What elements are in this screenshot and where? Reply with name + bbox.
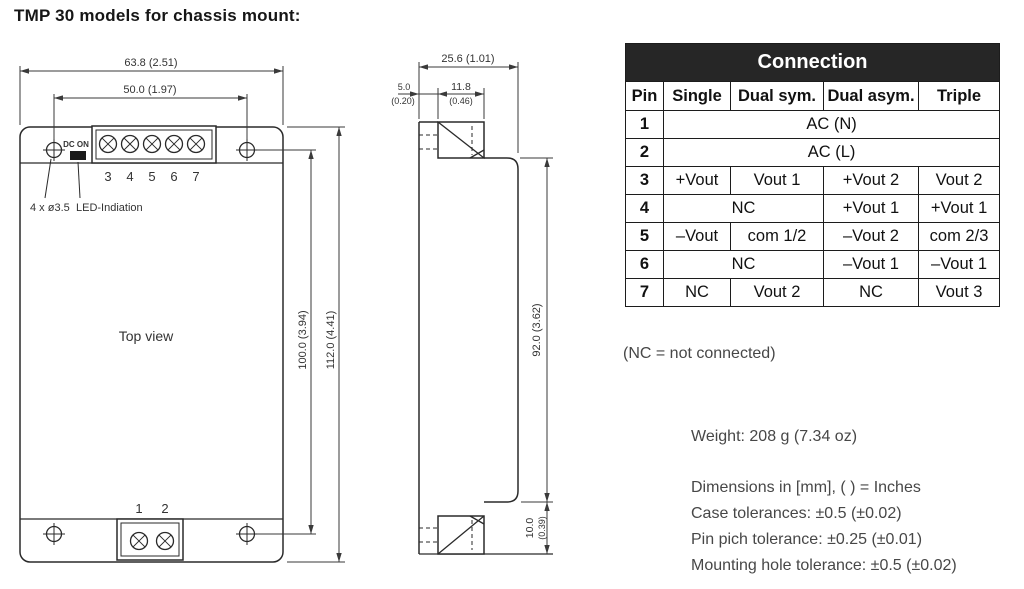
pin-cell: 7 — [626, 279, 664, 307]
pin-cell: 4 — [626, 195, 664, 223]
value-cell: AC (L) — [664, 139, 1000, 167]
terminal-block-top — [92, 126, 216, 163]
case-outline — [20, 127, 283, 562]
table-title: Connection — [626, 44, 1000, 82]
value-cell: NC — [664, 279, 731, 307]
dim-label-0-39: (0.39) — [537, 516, 547, 540]
page-title: TMP 30 models for chassis mount: — [14, 6, 301, 26]
column-header-triple: Triple — [919, 82, 1000, 111]
dim-label-0-46: (0.46) — [449, 96, 473, 106]
table-row-pin7: 7 NC Vout 2 NC Vout 3 — [626, 279, 1000, 307]
value-cell: Vout 2 — [919, 167, 1000, 195]
pin-pitch-tolerance-note: Pin pich tolerance: ±0.25 (±0.01) — [691, 527, 957, 553]
dim-label-92-0: 92.0 (3.62) — [531, 303, 543, 356]
value-cell: Vout 1 — [731, 167, 824, 195]
column-header-pin: Pin — [626, 82, 664, 111]
value-cell: +Vout — [664, 167, 731, 195]
top-view-label: Top view — [119, 328, 174, 344]
value-cell: –Vout — [664, 223, 731, 251]
pin-cell: 3 — [626, 167, 664, 195]
dim-label-25-6: 25.6 (1.01) — [441, 53, 494, 65]
dim-label-10-0: 10.0 — [524, 518, 536, 539]
led-note: LED-Indiation — [76, 202, 143, 214]
table-row-pin5: 5 –Vout com 1/2 –Vout 2 com 2/3 — [626, 223, 1000, 251]
pin-number-5: 5 — [148, 169, 155, 184]
table-row-pin2: 2 AC (L) — [626, 139, 1000, 167]
table-title-row: Connection — [626, 44, 1000, 82]
value-cell: –Vout 1 — [824, 251, 919, 279]
dim-label-63-8: 63.8 (2.51) — [124, 57, 177, 69]
value-cell: +Vout 1 — [919, 195, 1000, 223]
value-cell: Vout 2 — [731, 279, 824, 307]
value-cell: NC — [664, 251, 824, 279]
value-cell: +Vout 1 — [824, 195, 919, 223]
dim-label-5-0: 5.0 — [398, 82, 411, 92]
column-header-row: Pin Single Dual sym. Dual asym. Triple — [626, 82, 1000, 111]
dimension-height-outer: 112.0 (4.41) — [287, 127, 345, 562]
side-terminal-block-bottom — [419, 516, 484, 554]
nc-note: (NC = not connected) — [623, 345, 776, 363]
table-row-pin6: 6 NC –Vout 1 –Vout 1 — [626, 251, 1000, 279]
dimensions-units-note: Dimensions in [mm], ( ) = Inches — [691, 475, 957, 501]
mounting-hole-tolerance-note: Mounting hole tolerance: ±0.5 (±0.02) — [691, 553, 957, 579]
column-header-dual-sym: Dual sym. — [731, 82, 824, 111]
pin-number-7: 7 — [192, 169, 199, 184]
pin-number-3: 3 — [104, 169, 111, 184]
column-header-single: Single — [664, 82, 731, 111]
pin-number-2: 2 — [161, 501, 168, 516]
dim-label-112-0: 112.0 (4.41) — [325, 311, 337, 370]
top-view-drawing: 63.8 (2.51) 50.0 (1.97) 3 4 — [0, 55, 360, 580]
value-cell: –Vout 1 — [919, 251, 1000, 279]
value-cell: NC — [664, 195, 824, 223]
pin-number-1: 1 — [135, 501, 142, 516]
connection-table: Connection Pin Single Dual sym. Dual asy… — [625, 43, 1000, 307]
led-indicator — [70, 151, 86, 160]
pin-number-6: 6 — [170, 169, 177, 184]
terminal-block-bottom — [117, 519, 183, 560]
value-cell: com 1/2 — [731, 223, 824, 251]
pin-cell: 6 — [626, 251, 664, 279]
pin-cell: 2 — [626, 139, 664, 167]
dimension-lip-and-block: 5.0 (0.20) 11.8 (0.46) — [391, 81, 484, 119]
table-row-pin3: 3 +Vout Vout 1 +Vout 2 Vout 2 — [626, 167, 1000, 195]
tolerance-notes: Dimensions in [mm], ( ) = Inches Case to… — [691, 475, 957, 579]
pin-cell: 1 — [626, 111, 664, 139]
dim-label-11-8: 11.8 — [451, 81, 471, 93]
dimension-flange-height: 10.0 (0.39) — [524, 502, 547, 554]
dim-label-0-20: (0.20) — [391, 96, 415, 106]
value-cell: NC — [824, 279, 919, 307]
value-cell: com 2/3 — [919, 223, 1000, 251]
pin-number-4: 4 — [126, 169, 133, 184]
side-terminal-block-top — [419, 122, 484, 158]
value-cell: Vout 3 — [919, 279, 1000, 307]
pin-cell: 5 — [626, 223, 664, 251]
dc-on-label: DC ON — [63, 140, 89, 149]
column-header-dual-asym: Dual asym. — [824, 82, 919, 111]
case-tolerance-note: Case tolerances: ±0.5 (±0.02) — [691, 501, 957, 527]
table-row-pin4: 4 NC +Vout 1 +Vout 1 — [626, 195, 1000, 223]
value-cell: AC (N) — [664, 111, 1000, 139]
dimension-body-height: 92.0 (3.62) — [520, 158, 553, 502]
weight-note: Weight: 208 g (7.34 oz) — [691, 428, 857, 446]
table-row-pin1: 1 AC (N) — [626, 111, 1000, 139]
value-cell: –Vout 2 — [824, 223, 919, 251]
side-view-drawing: 25.6 (1.01) 5.0 (0.20) 11.8 (0.46) 92.0 … — [385, 55, 565, 580]
value-cell: +Vout 2 — [824, 167, 919, 195]
dim-label-50-0: 50.0 (1.97) — [123, 84, 176, 96]
dim-label-100-0: 100.0 (3.94) — [297, 310, 309, 369]
hole-note: 4 x ø3.5 — [30, 202, 70, 214]
